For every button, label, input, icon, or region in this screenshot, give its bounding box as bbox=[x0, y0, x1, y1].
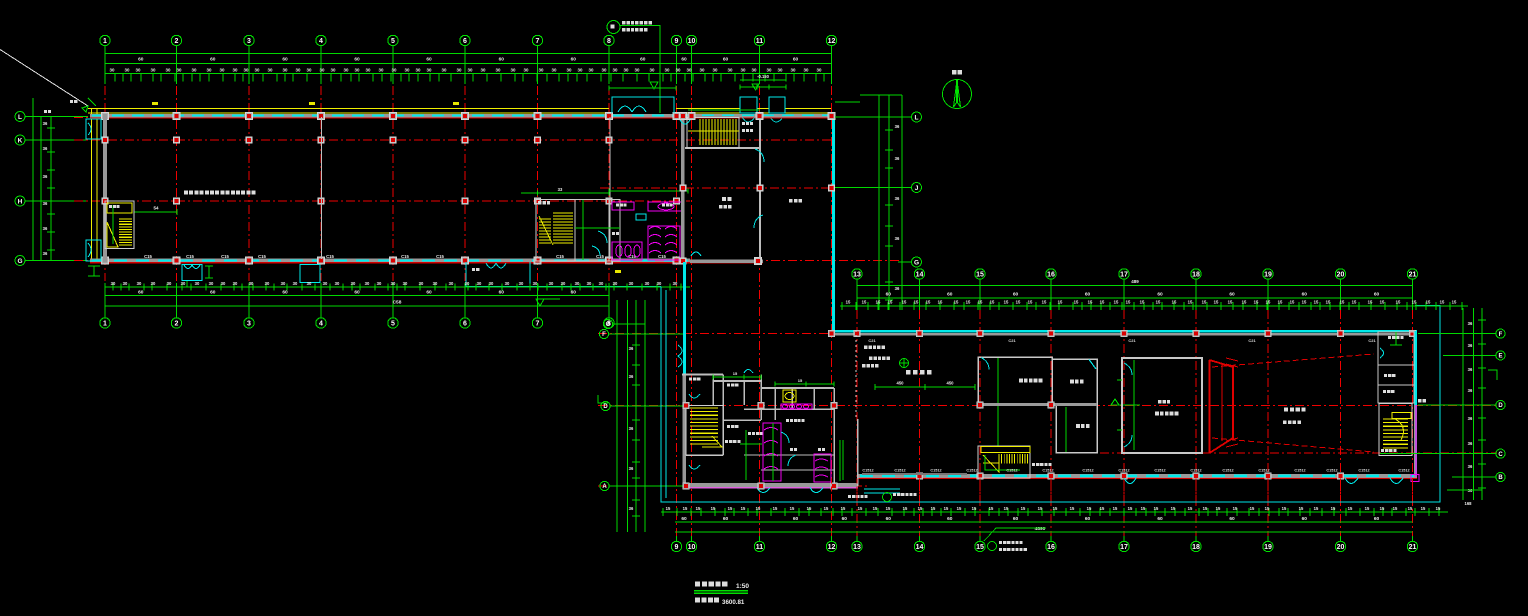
svg-text:C1512: C1512 bbox=[1258, 469, 1269, 473]
svg-text:21: 21 bbox=[1409, 272, 1417, 279]
svg-text:15: 15 bbox=[926, 300, 931, 305]
svg-text:30: 30 bbox=[575, 281, 580, 286]
svg-text:15: 15 bbox=[976, 272, 984, 279]
svg-text:15: 15 bbox=[1053, 506, 1058, 511]
svg-text:3: 3 bbox=[247, 321, 251, 328]
svg-text:30: 30 bbox=[137, 281, 142, 286]
svg-text:36: 36 bbox=[629, 506, 634, 511]
svg-text:30: 30 bbox=[645, 281, 650, 286]
svg-text:15: 15 bbox=[1140, 300, 1145, 305]
svg-text:30: 30 bbox=[624, 68, 629, 73]
svg-text:15: 15 bbox=[914, 300, 919, 305]
svg-text:C1512: C1512 bbox=[1190, 469, 1201, 473]
svg-text:3: 3 bbox=[247, 38, 251, 45]
svg-text:36: 36 bbox=[895, 236, 900, 241]
svg-text:15: 15 bbox=[798, 378, 803, 383]
svg-text:G: G bbox=[606, 322, 611, 328]
svg-text:15: 15 bbox=[931, 506, 936, 511]
svg-text:15: 15 bbox=[1282, 506, 1287, 511]
svg-text:15: 15 bbox=[1302, 300, 1307, 305]
svg-text:30: 30 bbox=[427, 68, 432, 73]
svg-text:30: 30 bbox=[281, 281, 286, 286]
svg-text:30: 30 bbox=[136, 68, 141, 73]
svg-text:30: 30 bbox=[307, 281, 312, 286]
svg-text:12: 12 bbox=[828, 38, 836, 45]
svg-text:30: 30 bbox=[468, 68, 473, 73]
svg-text:C1512: C1512 bbox=[1222, 469, 1233, 473]
svg-text:J: J bbox=[915, 185, 919, 192]
svg-text:15: 15 bbox=[1331, 506, 1336, 511]
svg-text:15: 15 bbox=[824, 506, 829, 511]
svg-text:60: 60 bbox=[354, 57, 360, 63]
svg-text:60: 60 bbox=[499, 57, 505, 63]
svg-text:15: 15 bbox=[1396, 300, 1401, 305]
svg-text:15: 15 bbox=[1299, 506, 1304, 511]
svg-text:C1512: C1512 bbox=[966, 469, 977, 473]
svg-text:30: 30 bbox=[123, 281, 128, 286]
svg-text:C15: C15 bbox=[436, 254, 444, 259]
svg-text:30: 30 bbox=[539, 68, 544, 73]
svg-text:15: 15 bbox=[773, 506, 778, 511]
svg-text:15: 15 bbox=[1348, 506, 1353, 511]
svg-text:F: F bbox=[1499, 332, 1503, 338]
svg-text:30: 30 bbox=[320, 68, 325, 73]
svg-text:60: 60 bbox=[282, 290, 288, 296]
svg-text:15: 15 bbox=[888, 300, 893, 305]
svg-text:15: 15 bbox=[1290, 300, 1295, 305]
svg-text:30: 30 bbox=[344, 68, 349, 73]
svg-text:15: 15 bbox=[741, 506, 746, 511]
svg-text:30: 30 bbox=[791, 68, 796, 73]
svg-text:C1512: C1512 bbox=[1154, 469, 1165, 473]
svg-text:18: 18 bbox=[1192, 272, 1200, 279]
svg-text:60: 60 bbox=[1374, 516, 1380, 522]
svg-text:30: 30 bbox=[477, 281, 482, 286]
svg-text:15: 15 bbox=[1074, 300, 1079, 305]
svg-text:2: 2 bbox=[175, 321, 179, 328]
svg-text:15: 15 bbox=[1016, 300, 1021, 305]
svg-text:30: 30 bbox=[195, 281, 200, 286]
svg-text:15: 15 bbox=[1004, 300, 1009, 305]
svg-text:36: 36 bbox=[895, 286, 900, 291]
svg-text:60: 60 bbox=[1229, 292, 1235, 298]
svg-text:60: 60 bbox=[282, 57, 288, 63]
svg-text:K: K bbox=[18, 137, 23, 144]
svg-text:60: 60 bbox=[681, 57, 687, 63]
svg-text:60: 60 bbox=[571, 57, 577, 63]
svg-text:15: 15 bbox=[728, 506, 733, 511]
svg-text:36: 36 bbox=[629, 466, 634, 471]
svg-text:60: 60 bbox=[1302, 516, 1308, 522]
svg-text:15: 15 bbox=[1380, 300, 1385, 305]
svg-text:15: 15 bbox=[1314, 506, 1319, 511]
svg-text:36: 36 bbox=[1468, 416, 1473, 421]
svg-text:C1512: C1512 bbox=[894, 469, 905, 473]
svg-text:18: 18 bbox=[1192, 544, 1200, 551]
svg-text:6: 6 bbox=[463, 321, 467, 328]
svg-text:30: 30 bbox=[365, 281, 370, 286]
svg-text:15: 15 bbox=[902, 300, 907, 305]
svg-text:30: 30 bbox=[331, 68, 336, 73]
svg-text:30: 30 bbox=[181, 281, 186, 286]
svg-text:30: 30 bbox=[335, 281, 340, 286]
svg-text:30: 30 bbox=[220, 68, 225, 73]
svg-text:15: 15 bbox=[1368, 300, 1373, 305]
svg-text:30: 30 bbox=[416, 68, 421, 73]
svg-text:5: 5 bbox=[391, 321, 395, 328]
svg-text:9: 9 bbox=[675, 544, 679, 551]
svg-text:30: 30 bbox=[752, 68, 757, 73]
svg-text:15: 15 bbox=[846, 300, 851, 305]
svg-text:30: 30 bbox=[177, 68, 182, 73]
svg-text:15: 15 bbox=[1326, 300, 1331, 305]
svg-text:15: 15 bbox=[1265, 506, 1270, 511]
svg-text:C15: C15 bbox=[221, 254, 229, 259]
svg-text:15: 15 bbox=[972, 506, 977, 511]
svg-text:15: 15 bbox=[807, 506, 812, 511]
svg-text:60: 60 bbox=[426, 290, 432, 296]
svg-text:D: D bbox=[1498, 403, 1503, 409]
svg-text:36: 36 bbox=[629, 374, 634, 379]
svg-text:15: 15 bbox=[841, 506, 846, 511]
svg-text:30: 30 bbox=[552, 68, 557, 73]
svg-text:30: 30 bbox=[505, 281, 510, 286]
svg-text:15: 15 bbox=[1042, 300, 1047, 305]
svg-text:15: 15 bbox=[954, 300, 959, 305]
svg-text:15: 15 bbox=[1436, 506, 1441, 511]
svg-text:C1512: C1512 bbox=[1398, 469, 1409, 473]
svg-text:15: 15 bbox=[1004, 506, 1009, 511]
svg-text:450: 450 bbox=[947, 381, 955, 386]
svg-text:30: 30 bbox=[457, 68, 462, 73]
svg-text:15: 15 bbox=[711, 506, 716, 511]
svg-text:4: 4 bbox=[319, 38, 323, 45]
svg-text:15: 15 bbox=[1421, 506, 1426, 511]
svg-text:C1512: C1512 bbox=[1326, 469, 1337, 473]
svg-text:36: 36 bbox=[43, 174, 48, 179]
svg-text:15: 15 bbox=[1440, 300, 1445, 305]
svg-text:60: 60 bbox=[138, 290, 144, 296]
svg-text:60: 60 bbox=[1374, 292, 1380, 298]
svg-text:30: 30 bbox=[403, 281, 408, 286]
svg-text:36: 36 bbox=[1468, 367, 1473, 372]
svg-text:60: 60 bbox=[138, 57, 144, 63]
svg-text:15: 15 bbox=[918, 506, 923, 511]
svg-text:15: 15 bbox=[990, 300, 995, 305]
svg-text:-0.150: -0.150 bbox=[757, 74, 770, 79]
svg-text:15: 15 bbox=[1278, 300, 1283, 305]
svg-text:30: 30 bbox=[151, 281, 156, 286]
svg-text:G: G bbox=[17, 258, 22, 265]
svg-text:60: 60 bbox=[640, 57, 646, 63]
svg-text:36: 36 bbox=[43, 226, 48, 231]
svg-text:15: 15 bbox=[858, 506, 863, 511]
svg-text:15: 15 bbox=[1228, 300, 1233, 305]
svg-text:30: 30 bbox=[283, 68, 288, 73]
svg-text:30: 30 bbox=[519, 281, 524, 286]
svg-text:30: 30 bbox=[511, 68, 516, 73]
svg-text:1: 1 bbox=[103, 321, 107, 328]
svg-text:C1512: C1512 bbox=[930, 469, 941, 473]
svg-text:30: 30 bbox=[405, 68, 410, 73]
svg-text:21: 21 bbox=[1409, 544, 1417, 551]
svg-text:15: 15 bbox=[1233, 506, 1238, 511]
svg-text:C: C bbox=[1498, 452, 1503, 458]
svg-text:10: 10 bbox=[688, 38, 696, 45]
svg-text:30: 30 bbox=[296, 68, 301, 73]
svg-text:36: 36 bbox=[43, 251, 48, 256]
svg-text:60: 60 bbox=[1085, 292, 1091, 298]
svg-text:5: 5 bbox=[391, 38, 395, 45]
svg-text:15: 15 bbox=[733, 371, 738, 376]
svg-text:D: D bbox=[603, 404, 608, 410]
svg-text:30: 30 bbox=[419, 281, 424, 286]
svg-text:30: 30 bbox=[817, 68, 822, 73]
svg-text:15: 15 bbox=[1426, 300, 1431, 305]
svg-text:30: 30 bbox=[209, 281, 214, 286]
svg-text:60: 60 bbox=[210, 57, 216, 63]
svg-text:C1512: C1512 bbox=[1042, 469, 1053, 473]
svg-text:15: 15 bbox=[957, 506, 962, 511]
svg-text:C21: C21 bbox=[1128, 338, 1136, 343]
svg-text:15: 15 bbox=[1087, 506, 1092, 511]
svg-text:30: 30 bbox=[589, 68, 594, 73]
svg-text:15: 15 bbox=[1188, 506, 1193, 511]
svg-text:15: 15 bbox=[1156, 300, 1161, 305]
svg-text:30: 30 bbox=[293, 281, 298, 286]
svg-text:30: 30 bbox=[676, 68, 681, 73]
svg-text:30: 30 bbox=[599, 281, 604, 286]
svg-text:30: 30 bbox=[355, 68, 360, 73]
svg-text:C21: C21 bbox=[1368, 338, 1376, 343]
svg-text:30: 30 bbox=[233, 281, 238, 286]
svg-text:36: 36 bbox=[1468, 441, 1473, 446]
svg-text:30: 30 bbox=[741, 68, 746, 73]
svg-text:G: G bbox=[914, 259, 919, 266]
svg-text:6: 6 bbox=[463, 38, 467, 45]
svg-text:15: 15 bbox=[1114, 300, 1119, 305]
svg-text:60: 60 bbox=[1157, 292, 1163, 298]
svg-text:30: 30 bbox=[323, 281, 328, 286]
svg-text:30: 30 bbox=[613, 68, 618, 73]
svg-text:36: 36 bbox=[1468, 464, 1473, 469]
svg-text:15: 15 bbox=[944, 506, 949, 511]
svg-text:15: 15 bbox=[976, 544, 984, 551]
svg-text:C15: C15 bbox=[144, 254, 152, 259]
svg-text:30: 30 bbox=[587, 281, 592, 286]
svg-text:15: 15 bbox=[1202, 300, 1207, 305]
svg-text:17: 17 bbox=[1120, 272, 1128, 279]
svg-text:9: 9 bbox=[675, 38, 679, 45]
svg-text:15: 15 bbox=[1172, 300, 1177, 305]
svg-text:60: 60 bbox=[1157, 516, 1163, 522]
svg-text:12: 12 bbox=[828, 544, 836, 551]
svg-text:11: 11 bbox=[756, 544, 764, 551]
svg-text:C58: C58 bbox=[393, 300, 402, 306]
svg-text:36: 36 bbox=[1468, 321, 1473, 326]
svg-text:30: 30 bbox=[687, 68, 692, 73]
svg-text:489: 489 bbox=[1131, 279, 1139, 284]
svg-text:30: 30 bbox=[524, 68, 529, 73]
svg-text:30: 30 bbox=[442, 68, 447, 73]
svg-text:14: 14 bbox=[916, 272, 924, 279]
svg-text:15: 15 bbox=[790, 506, 795, 511]
svg-text:30: 30 bbox=[377, 281, 382, 286]
svg-text:60: 60 bbox=[1085, 516, 1091, 522]
svg-text:4890: 4890 bbox=[1035, 526, 1046, 532]
svg-text:F: F bbox=[602, 332, 606, 338]
svg-text:30: 30 bbox=[635, 68, 640, 73]
svg-text:E: E bbox=[1498, 354, 1502, 360]
svg-text:15: 15 bbox=[1058, 300, 1063, 305]
svg-text:36: 36 bbox=[895, 196, 900, 201]
svg-text:30: 30 bbox=[233, 68, 238, 73]
svg-text:30: 30 bbox=[629, 281, 634, 286]
svg-text:13: 13 bbox=[853, 272, 861, 279]
svg-text:60: 60 bbox=[947, 516, 953, 522]
svg-text:30: 30 bbox=[151, 68, 156, 73]
svg-text:2: 2 bbox=[175, 38, 179, 45]
svg-text:15: 15 bbox=[1203, 506, 1208, 511]
svg-text:15: 15 bbox=[876, 300, 881, 305]
svg-text:15: 15 bbox=[683, 506, 688, 511]
svg-text:30: 30 bbox=[602, 68, 607, 73]
svg-text:L: L bbox=[18, 114, 22, 121]
svg-text:30: 30 bbox=[207, 68, 212, 73]
svg-text:1:50: 1:50 bbox=[736, 583, 749, 590]
svg-text:30: 30 bbox=[111, 281, 116, 286]
svg-text:30: 30 bbox=[167, 281, 172, 286]
svg-text:C15: C15 bbox=[258, 254, 266, 259]
svg-text:7: 7 bbox=[536, 321, 540, 328]
svg-text:30: 30 bbox=[561, 281, 566, 286]
svg-text:C1512: C1512 bbox=[1358, 469, 1369, 473]
svg-text:60: 60 bbox=[1013, 292, 1019, 298]
svg-text:C21: C21 bbox=[868, 338, 876, 343]
svg-text:15: 15 bbox=[756, 506, 761, 511]
svg-text:30: 30 bbox=[366, 68, 371, 73]
svg-text:30: 30 bbox=[549, 281, 554, 286]
svg-text:60: 60 bbox=[793, 516, 799, 522]
svg-text:30: 30 bbox=[110, 68, 115, 73]
svg-text:C1512: C1512 bbox=[1294, 469, 1305, 473]
svg-text:15: 15 bbox=[873, 506, 878, 511]
svg-text:15: 15 bbox=[1100, 506, 1105, 511]
svg-text:30: 30 bbox=[249, 281, 254, 286]
svg-text:15: 15 bbox=[1113, 506, 1118, 511]
svg-text:15: 15 bbox=[1141, 506, 1146, 511]
svg-text:30: 30 bbox=[268, 68, 273, 73]
svg-text:20: 20 bbox=[1337, 272, 1345, 279]
svg-text:15: 15 bbox=[1393, 506, 1398, 511]
svg-text:15: 15 bbox=[1128, 506, 1133, 511]
svg-text:30: 30 bbox=[804, 68, 809, 73]
svg-text:15: 15 bbox=[1126, 300, 1131, 305]
svg-text:30: 30 bbox=[379, 68, 384, 73]
svg-text:C15: C15 bbox=[186, 254, 194, 259]
svg-text:36: 36 bbox=[895, 156, 900, 161]
svg-text:36: 36 bbox=[1468, 388, 1473, 393]
svg-text:C15: C15 bbox=[326, 254, 334, 259]
svg-text:30: 30 bbox=[673, 281, 678, 286]
svg-text:15: 15 bbox=[978, 300, 983, 305]
svg-text:C1512: C1512 bbox=[1082, 469, 1093, 473]
svg-text:15: 15 bbox=[1408, 506, 1413, 511]
svg-text:C15: C15 bbox=[556, 254, 564, 259]
svg-text:15: 15 bbox=[1216, 506, 1221, 511]
svg-text:30: 30 bbox=[767, 68, 772, 73]
svg-text:15: 15 bbox=[1171, 506, 1176, 511]
svg-text:60: 60 bbox=[571, 290, 577, 296]
svg-text:L: L bbox=[915, 114, 919, 121]
svg-text:60: 60 bbox=[793, 57, 799, 63]
svg-text:15: 15 bbox=[1242, 300, 1247, 305]
svg-text:36: 36 bbox=[895, 124, 900, 129]
svg-text:30: 30 bbox=[613, 281, 618, 286]
svg-text:30: 30 bbox=[657, 281, 662, 286]
svg-text:30: 30 bbox=[265, 281, 270, 286]
svg-text:15: 15 bbox=[903, 506, 908, 511]
svg-text:30: 30 bbox=[433, 281, 438, 286]
svg-text:13: 13 bbox=[853, 544, 861, 551]
svg-text:19: 19 bbox=[1264, 544, 1272, 551]
svg-text:15: 15 bbox=[989, 506, 994, 511]
svg-text:60: 60 bbox=[210, 290, 216, 296]
svg-text:15: 15 bbox=[1314, 300, 1319, 305]
svg-text:30: 30 bbox=[351, 281, 356, 286]
svg-text:54: 54 bbox=[153, 206, 159, 211]
svg-text:60: 60 bbox=[886, 516, 892, 522]
svg-text:15: 15 bbox=[1250, 506, 1255, 511]
svg-text:11: 11 bbox=[756, 38, 764, 45]
svg-text:36: 36 bbox=[629, 346, 634, 351]
svg-text:15: 15 bbox=[1038, 506, 1043, 511]
svg-text:168: 168 bbox=[1465, 501, 1473, 506]
svg-text:60: 60 bbox=[842, 516, 848, 522]
svg-text:60: 60 bbox=[723, 57, 729, 63]
svg-text:15: 15 bbox=[1412, 300, 1417, 305]
svg-text:30: 30 bbox=[481, 68, 486, 73]
svg-text:C1512: C1512 bbox=[1006, 469, 1017, 473]
svg-text:60: 60 bbox=[1229, 516, 1235, 522]
svg-text:15: 15 bbox=[1021, 506, 1026, 511]
svg-text:36: 36 bbox=[1468, 343, 1473, 348]
svg-text:30: 30 bbox=[391, 281, 396, 286]
svg-text:36: 36 bbox=[43, 201, 48, 206]
svg-text:30: 30 bbox=[465, 281, 470, 286]
svg-text:450: 450 bbox=[897, 381, 905, 386]
svg-text:C21: C21 bbox=[1248, 338, 1256, 343]
svg-text:15: 15 bbox=[666, 506, 671, 511]
svg-text:15: 15 bbox=[938, 300, 943, 305]
svg-text:15: 15 bbox=[1188, 300, 1193, 305]
svg-text:30: 30 bbox=[221, 281, 226, 286]
svg-text:30: 30 bbox=[255, 68, 260, 73]
svg-text:17: 17 bbox=[1120, 544, 1128, 551]
svg-text:30: 30 bbox=[728, 68, 733, 73]
svg-text:60: 60 bbox=[354, 290, 360, 296]
svg-text:C1512: C1512 bbox=[1118, 469, 1129, 473]
svg-text:36: 36 bbox=[43, 146, 48, 151]
svg-text:30: 30 bbox=[665, 68, 670, 73]
svg-text:15: 15 bbox=[1154, 506, 1159, 511]
svg-text:60: 60 bbox=[947, 292, 953, 298]
svg-text:30: 30 bbox=[700, 68, 705, 73]
svg-text:60: 60 bbox=[723, 516, 729, 522]
svg-text:H: H bbox=[18, 198, 23, 205]
svg-text:15: 15 bbox=[1070, 506, 1075, 511]
svg-text:10: 10 bbox=[688, 544, 696, 551]
